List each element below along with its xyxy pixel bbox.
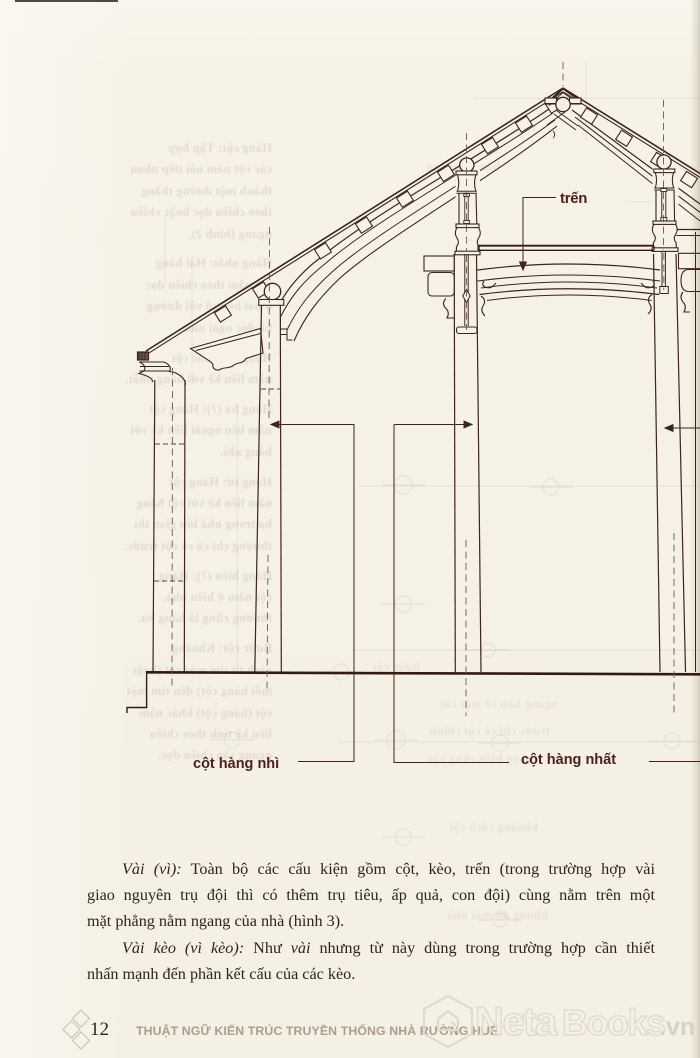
svg-text:Neta: Neta [475, 1000, 558, 1044]
svg-text:.vn: .vn [659, 1013, 695, 1041]
svg-text:Books: Books [562, 1002, 665, 1043]
